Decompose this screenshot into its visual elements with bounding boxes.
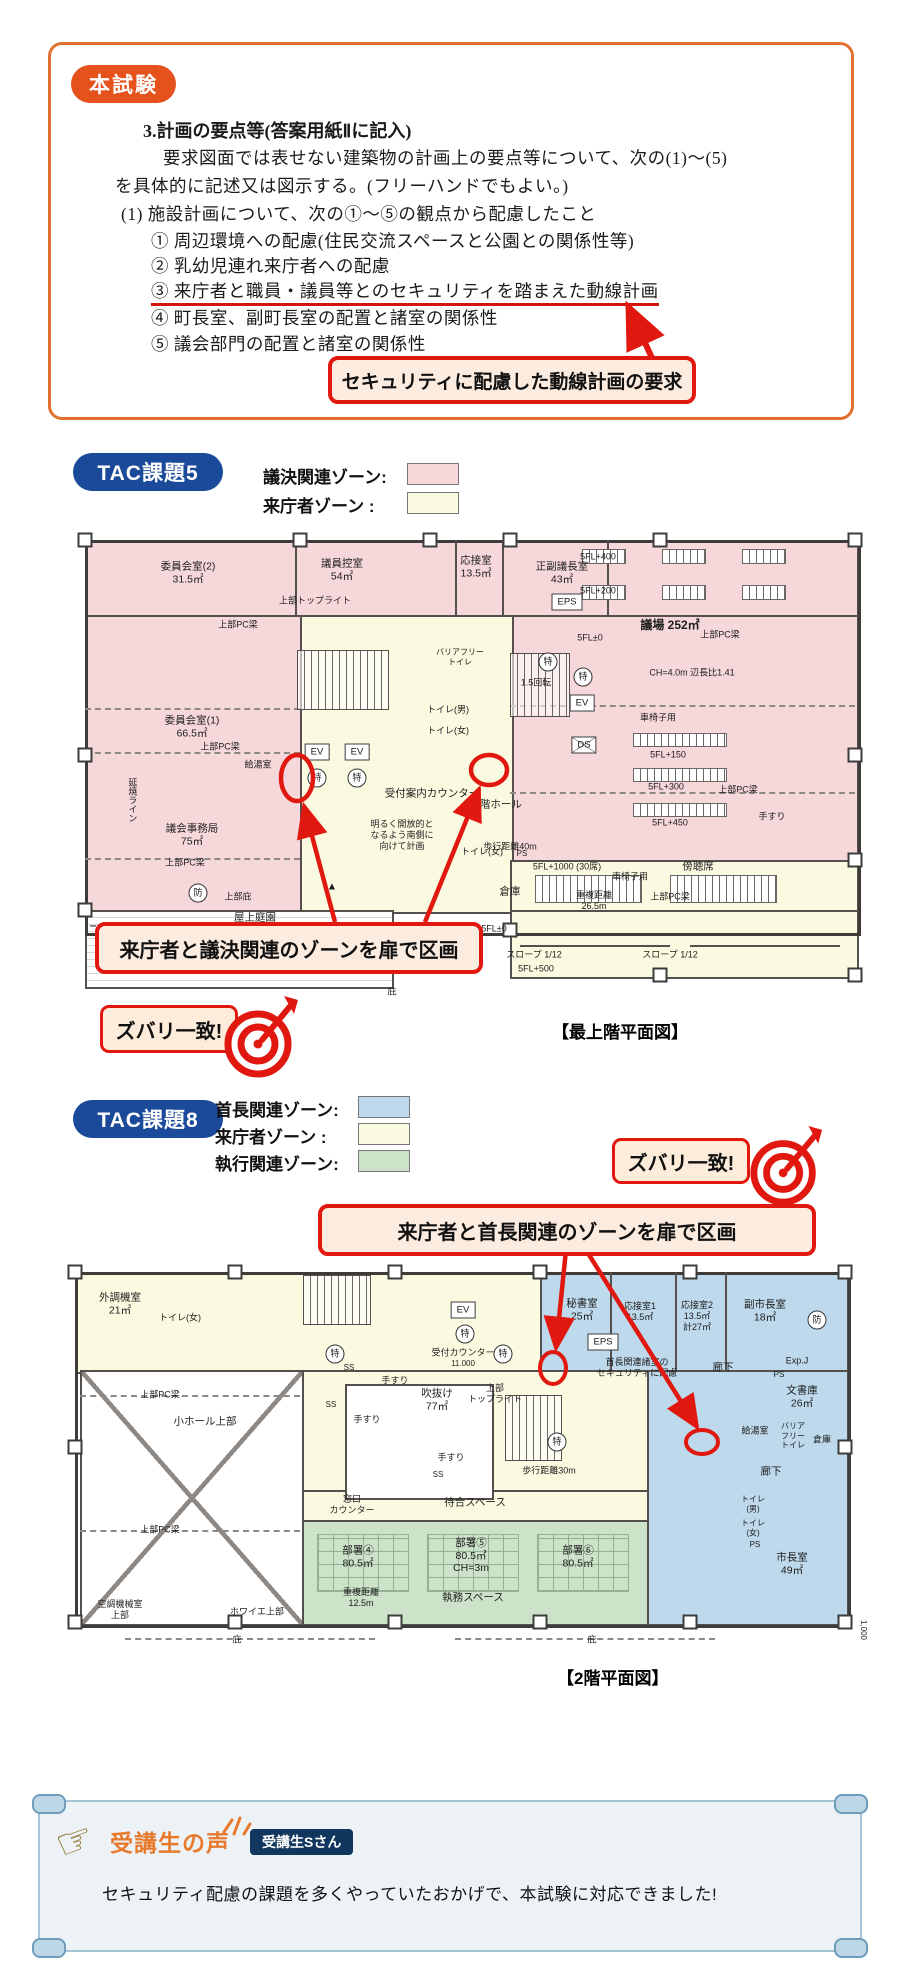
level-label: 5FL±0: [481, 924, 506, 935]
waiting-space-label: 待合スペース: [444, 1497, 506, 1510]
special-mark: 特: [494, 1345, 513, 1364]
corridor-label: 廊下: [713, 1362, 734, 1375]
plan2-caption: 【2階平面図】: [557, 1664, 668, 1689]
special-mark: 特: [574, 668, 593, 687]
pc-beam-line: [85, 708, 300, 710]
entry-triangle-mark: ▲: [327, 881, 337, 894]
floor-plan-second-floor: 外調機室 21㎡ トイレ(女) EV 特 受付カウンター 11.000 秘書室 …: [65, 1262, 875, 1647]
room-label: 倉庫: [500, 886, 521, 899]
column-marker: [653, 533, 668, 548]
beam-label: 上部PC梁: [218, 620, 258, 631]
column-marker: [683, 1265, 698, 1280]
eps-shaft-label: EPS: [587, 1334, 618, 1351]
column-marker: [838, 1440, 853, 1455]
dart-target-icon: [222, 992, 302, 1082]
atrium-label: 吹抜け 77㎡: [421, 1387, 453, 1412]
accessible-toilet-label: バリアフリー トイレ: [436, 647, 484, 666]
beam-label: 上部PC梁: [165, 858, 205, 869]
legend-swatch-blue: [358, 1096, 410, 1118]
corridor-label: 廊下: [761, 1466, 782, 1479]
seating-graphic: [742, 549, 786, 564]
wall: [455, 540, 457, 617]
special-mark: 特: [326, 1345, 345, 1364]
small-hall-void: [80, 1370, 304, 1626]
ss-mark: SS: [326, 1400, 337, 1410]
tac-task5-badge: TAC課題5: [73, 453, 223, 491]
student-name-badge: 受講生Sさん: [250, 1829, 353, 1855]
exam-item-heading: (1) 施設計画について、次の①〜⑤の観点から配慮したこと: [121, 201, 596, 226]
room-label: 傍聴席: [682, 861, 714, 874]
task8-annotation-box: 来庁者と首長関連のゾーンを扉で区画: [318, 1204, 816, 1256]
beam-label: 上部PC梁: [650, 892, 690, 903]
toilet-label: トイレ(女): [461, 847, 503, 858]
security-note: 首長関連諸室の セキュリティに配慮: [597, 1357, 677, 1379]
task5-match-badge: ズバリ一致!: [100, 1005, 238, 1053]
dimension-label: 1,000: [858, 1620, 868, 1640]
column-marker: [838, 1615, 853, 1630]
pipe-shaft-label: PS: [517, 849, 528, 859]
column-marker: [533, 1265, 548, 1280]
exam-point-1: ① 周辺環境への配慮(住民交流スペースと公園との関係性等): [151, 228, 634, 253]
scroll-corner: [32, 1794, 66, 1814]
toplight-label: 上部トップライト: [279, 596, 351, 607]
column-marker: [848, 748, 863, 763]
scroll-corner: [834, 1938, 868, 1958]
column-marker: [423, 533, 438, 548]
room-label: 部署⑥ 80.5㎡: [562, 1544, 594, 1569]
room-label: 委員会室(1) 66.5㎡: [165, 714, 220, 739]
stair-note: 1.5回転: [521, 678, 552, 689]
scroll-corner: [32, 1938, 66, 1958]
eps-shaft-label: EPS: [551, 594, 582, 611]
room-label: 市長室 49㎡: [776, 1551, 808, 1576]
special-mark: 特: [548, 1433, 567, 1452]
plan1-caption: 【最上階平面図】: [552, 1018, 688, 1043]
room-label: 秘書室 25㎡: [566, 1297, 598, 1322]
seating-graphic: [662, 585, 706, 600]
floor-plan-top-floor: 委員会室(2) 31.5㎡ 議員控室 54㎡ 応接室 13.5㎡ 正副議長室 4…: [70, 505, 870, 1065]
toplight-label: 上部 トップライト: [468, 1383, 522, 1405]
toilet-label: トイレ (女): [741, 1518, 765, 1537]
eave-label: 庇: [387, 987, 396, 998]
seating-graphic: [633, 768, 727, 782]
room-label: 委員会室(2) 31.5㎡: [161, 560, 216, 585]
legend-swatch-cream: [358, 1123, 410, 1145]
exam-point-2: ② 乳幼児連れ来庁者への配慮: [151, 253, 390, 278]
ramp-line: [690, 945, 840, 947]
column-marker: [838, 1265, 853, 1280]
toilet-label: トイレ(男): [427, 705, 469, 716]
toilet-label: トイレ(女): [427, 726, 469, 737]
elevator-label: EV: [451, 1302, 476, 1319]
column-marker: [78, 533, 93, 548]
stair-west: [297, 650, 389, 710]
room-label: 給湯室: [244, 760, 271, 771]
room-label: 部署④ 80.5㎡: [342, 1544, 374, 1569]
level-label: 5FL±0: [577, 633, 602, 644]
elevator-label: EV: [570, 695, 595, 712]
beam-label: 上部PC梁: [700, 630, 740, 641]
level-label: 5FL+300: [648, 782, 684, 793]
room-label: 応接室2 13.5㎡ 計27㎡: [681, 1300, 713, 1332]
seating-graphic: [633, 733, 727, 747]
voice-comment: セキュリティ配慮の課題を多くやっていたおかげで、本試験に対応できました!: [102, 1880, 717, 1905]
expansion-joint-label: Exp.J: [786, 1356, 809, 1367]
column-marker: [848, 853, 863, 868]
pipe-shaft-label: PS: [774, 1370, 785, 1380]
column-marker: [848, 533, 863, 548]
reception-counter-label: 受付案内カウンター: [385, 788, 480, 801]
column-marker: [653, 968, 668, 983]
room-label: 議会事務局 75㎡: [166, 822, 219, 847]
toilet-label: トイレ(女): [159, 1313, 201, 1324]
room-label: 部署⑤ 80.5㎡ CH=3m: [453, 1537, 489, 1575]
room-label: 倉庫: [813, 1435, 831, 1446]
special-mark: 特: [308, 769, 327, 788]
level-label: 5FL+400: [580, 552, 616, 563]
hall-label: 5階ホール: [474, 799, 522, 812]
room-label: 議員控室 54㎡: [321, 557, 363, 582]
elevator-label: EV: [305, 744, 330, 761]
note-label: 車椅子用: [612, 872, 648, 883]
level-label: 5FL+200: [580, 586, 616, 597]
special-mark: 特: [456, 1325, 475, 1344]
handrail-label: 手すり: [437, 1453, 464, 1464]
seating-graphic: [662, 549, 706, 564]
design-note: 明るく開放的と なるよう南側に 向けて計画: [370, 819, 433, 851]
eave-line: [125, 1638, 375, 1640]
slope-label: スロープ 1/12: [642, 950, 697, 961]
task5-annotation-box: 来庁者と議決関連のゾーンを扉で区画: [95, 922, 483, 974]
legend-label: 執行関連ゾーン:: [215, 1150, 339, 1175]
exam-point-4: ④ 町長室、副町長室の配置と諸室の関係性: [151, 305, 498, 330]
handrail-label: 手すり: [353, 1415, 380, 1426]
legend-swatch-pink: [407, 463, 459, 485]
room-label: 正副議長室 43㎡: [536, 560, 589, 585]
column-marker: [68, 1265, 83, 1280]
dimension-label: 11.000: [451, 1359, 475, 1369]
voice-title: 受講生の声: [110, 1824, 230, 1858]
beam-label: 上部PC梁: [140, 1390, 180, 1401]
column-marker: [293, 533, 308, 548]
special-mark: 特: [539, 653, 558, 672]
legend-label: 来庁者ゾーン :: [215, 1123, 327, 1148]
handrail-label: 手すり: [381, 1376, 408, 1387]
slope-label: スロープ 1/12: [506, 950, 561, 961]
room-label: 応接室1 13.5㎡: [624, 1301, 656, 1323]
exam-point-5: ⑤ 議会部門の配置と諸室の関係性: [151, 331, 426, 356]
counter-label: 窓口 カウンター: [329, 1494, 374, 1516]
exam-requirements-box: 本試験 3.計画の要点等(答案用紙Ⅱに記入) 要求図面では表せない建築物の計画上…: [48, 42, 854, 420]
pointing-hand-icon: ☞: [49, 1811, 101, 1870]
room-label: 議場 252㎡: [640, 618, 699, 632]
pc-beam-line: [80, 1395, 300, 1397]
pipe-shaft-label: PS: [750, 1540, 761, 1550]
stair-north: [303, 1275, 371, 1325]
room-label: 小ホール上部: [174, 1416, 237, 1429]
level-label: 5FL+1000 (30席): [533, 862, 601, 873]
beam-label: 上部PC梁: [140, 1525, 180, 1536]
column-marker: [68, 1615, 83, 1630]
seating-graphic: [742, 585, 786, 600]
level-label: 5FL+150: [650, 750, 686, 761]
dart-target-icon: [748, 1122, 826, 1210]
column-marker: [683, 1615, 698, 1630]
column-marker: [503, 533, 518, 548]
pc-beam-line: [85, 752, 300, 754]
room-label: 空調機械室 上部: [97, 1599, 142, 1621]
column-marker: [848, 968, 863, 983]
room-label: 応接室 13.5㎡: [460, 554, 492, 579]
ss-mark: SS: [433, 1470, 444, 1480]
wall: [502, 540, 504, 617]
fire-spread-line-label: 延焼ライン: [127, 778, 138, 823]
student-voice-banner: ☞ 受講生の声 受講生Sさん セキュリティ配慮の課題を多くやっていたおかげで、本…: [38, 1800, 862, 1952]
room-label: 文書庫 26㎡: [786, 1384, 818, 1409]
duct-shaft-label: DS: [571, 737, 596, 754]
room-label: 給湯室: [741, 1426, 768, 1437]
accessible-toilet-label: バリア フリー トイレ: [781, 1422, 805, 1451]
fire-mark: 防: [808, 1311, 827, 1330]
walk-distance-label: 歩行距離30m: [522, 1466, 576, 1477]
special-mark: 特: [348, 769, 367, 788]
note-label: CH=4.0m 辺長比1.41: [649, 668, 734, 679]
note-label: 車椅子用: [640, 713, 676, 724]
exam-text-line: を具体的に記述又は図示する。(フリーハンドでもよい。): [115, 173, 569, 198]
level-label: 5FL+450: [652, 818, 688, 829]
beam-label: 上部PC梁: [200, 742, 240, 753]
eave-label: 庇: [587, 1635, 596, 1646]
beam-label: 上部PC梁: [718, 785, 758, 796]
seating-graphic: [633, 803, 727, 817]
toilet-label: トイレ (男): [741, 1494, 765, 1513]
overlap-distance-label: 重複距離 12.5m: [343, 1587, 379, 1609]
overlap-distance-label: 重複距離 26.5m: [576, 890, 612, 912]
ss-mark: SS: [344, 1363, 355, 1373]
handrail-label: 手すり: [758, 812, 785, 823]
wall: [540, 1272, 542, 1372]
eave-label: 庇: [232, 1635, 241, 1646]
room-label: 副市長室 18㎡: [744, 1298, 786, 1323]
column-marker: [78, 748, 93, 763]
legend-label: 首長関連ゾーン:: [215, 1096, 339, 1121]
ramp-line: [520, 945, 670, 947]
study-material-page: 本試験 3.計画の要点等(答案用紙Ⅱに記入) 要求図面では表せない建築物の計画上…: [0, 0, 900, 1965]
column-marker: [388, 1615, 403, 1630]
sparkle-icon: [218, 1812, 254, 1838]
task8-match-badge: ズバリ一致!: [612, 1138, 750, 1184]
reception-counter-label: 受付カウンター: [431, 1348, 494, 1359]
column-marker: [388, 1265, 403, 1280]
column-marker: [78, 903, 93, 918]
fire-mark: 防: [189, 884, 208, 903]
wall: [725, 1272, 727, 1372]
workspace-label: 執務スペース: [442, 1592, 504, 1605]
tac-task8-badge: TAC課題8: [73, 1100, 223, 1138]
eave-label: 上部庇: [224, 892, 251, 903]
level-label: 5FL+500: [518, 964, 554, 975]
column-marker: [68, 1440, 83, 1455]
scroll-corner: [834, 1794, 868, 1814]
column-marker: [533, 1615, 548, 1630]
pc-beam-line: [80, 1530, 300, 1532]
exam-badge: 本試験: [71, 65, 176, 103]
eave-line: [455, 1638, 715, 1640]
security-callout-box: セキュリティに配慮した動線計画の要求: [328, 356, 696, 404]
column-marker: [228, 1265, 243, 1280]
room-label: ホワイエ上部: [230, 1607, 284, 1618]
legend-label: 議決関連ゾーン:: [263, 463, 387, 488]
elevator-label: EV: [345, 744, 370, 761]
exam-text-line: 要求図面では表せない建築物の計画上の要点等について、次の(1)〜(5): [163, 145, 727, 170]
exam-heading: 3.計画の要点等(答案用紙Ⅱに記入): [143, 117, 411, 143]
exam-point-3-highlighted: ③ 来庁者と職員・議員等とのセキュリティを踏まえた動線計画: [151, 278, 659, 303]
room-label: 外調機室 21㎡: [99, 1291, 141, 1316]
legend-swatch-green: [358, 1150, 410, 1172]
